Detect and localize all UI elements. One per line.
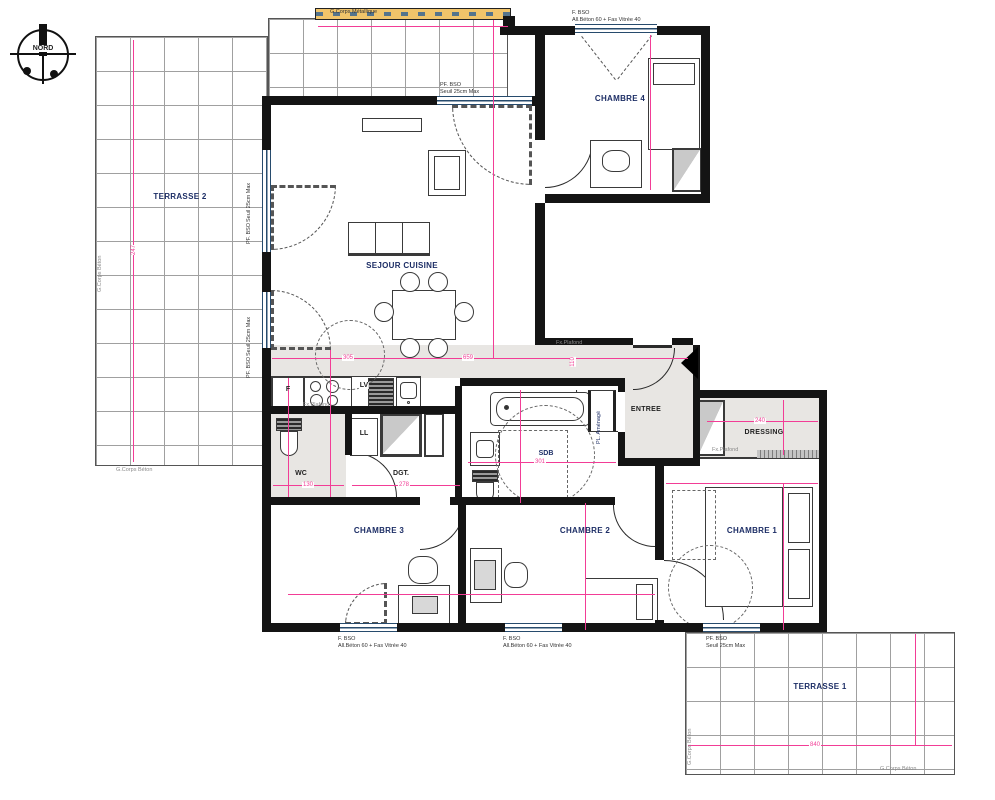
compass-dot-se [50, 70, 58, 78]
wall-right-outer [819, 390, 827, 632]
monitor-chambre2 [474, 560, 496, 590]
chair-4 [428, 338, 448, 358]
sejour-label: SEJOUR CUISINE [366, 261, 438, 270]
wall-corridor-top [535, 338, 633, 345]
note-window-chambre2: F. BSO All.Béton 60 + Fas Vitrée 40 [503, 636, 572, 649]
entree-label: ENTREE [631, 406, 661, 413]
dim-dressing: 240 [754, 418, 766, 424]
burner-1 [310, 381, 321, 392]
wall-ch4-bottom [545, 194, 710, 203]
dim-line-ch1-v [783, 483, 784, 630]
dim-wc: 130 [302, 482, 314, 488]
dim-terrasse1: 840 [809, 742, 821, 748]
dim-line-bedrooms [288, 594, 655, 595]
pillow-chambre4 [653, 63, 695, 85]
entrance-arrow-icon [681, 347, 698, 379]
wall-entree-left [618, 432, 625, 462]
dim-line-sdb-v [520, 390, 521, 503]
sdb-wc-tank [472, 470, 498, 482]
window-sejour-left-upper [262, 150, 271, 252]
note-window-chambre4: F. BSO All.Béton 60 + Fas Vitrée 40 [572, 10, 641, 23]
dim-terrasse2: 247 [131, 245, 137, 255]
dressing-label: DRESSING [745, 429, 784, 436]
compass-label: NORD [32, 45, 55, 52]
dim-line-wc-v [288, 378, 289, 497]
wall-dressing-top [700, 390, 827, 398]
pillow-chambre1-a [788, 493, 810, 543]
note-wll-2: Seuil 25cm Max [246, 317, 253, 356]
closet-dgt-large [380, 413, 422, 457]
window-chambre4 [575, 24, 657, 33]
note-wc2-1: F. BSO [503, 636, 572, 643]
wall-sdb-top [460, 378, 625, 386]
terrasse1-concrete-note-bottom: G.Corps Béton [880, 766, 916, 773]
door-arc-wc [352, 452, 397, 497]
shutter-arc-left-upper [271, 185, 336, 250]
note-window-left-lower: PF. BSO Seuil 25cm Max [246, 292, 253, 378]
tv-panel-inner [434, 156, 460, 190]
chair-3 [400, 338, 420, 358]
wall-sejour-left-c [262, 348, 271, 632]
closet-dgt-small [424, 413, 444, 457]
shutter-arc-chambre3 [345, 583, 387, 625]
wall-ch1-top-link [660, 458, 700, 466]
window-chambre1 [703, 623, 760, 632]
note-false-ceiling-dressing: Fx.Plafond [712, 447, 738, 454]
wall-ch4-right [701, 26, 710, 203]
dim-line-sejour-v [493, 20, 494, 358]
terrasse2-label: TERRASSE 2 [153, 192, 206, 201]
wall-sejour-right [535, 203, 545, 345]
dishwasher-label: LV [359, 382, 369, 389]
terrasse1-label: TERRASSE 1 [793, 682, 846, 691]
wall-bottom-a [262, 623, 340, 632]
window-chambre3 [340, 623, 397, 632]
wall-ch3-ch2-divider [458, 505, 466, 632]
wall-bottom-b [397, 623, 505, 632]
chambre3-label: CHAMBRE 3 [354, 526, 404, 535]
closet-chambre4 [672, 148, 702, 192]
note-wll-1: PF. BSO [246, 357, 253, 378]
pillow-chambre1-b [788, 549, 810, 599]
chambre4-label: CHAMBRE 4 [595, 94, 645, 103]
dim-line-ch4-v [650, 35, 651, 190]
chair-6 [454, 302, 474, 322]
window-sejour-left-lower [262, 292, 271, 348]
dim-corridor-a: 305 [342, 355, 354, 361]
dim-dgt: 278 [398, 482, 410, 488]
note-wst-1: PF. BSO [440, 82, 479, 89]
floor-plan: NORD G.Corps Métallique TERRASSE 2 G.Cor… [0, 0, 995, 800]
dim-line-ch2-v [585, 503, 586, 630]
wall-sdb-right-low [618, 386, 625, 392]
note-wc4-1: F. BSO [572, 10, 641, 17]
chair-5 [374, 302, 394, 322]
compass-needle-tail [42, 56, 44, 84]
wall-sejour-left-b [262, 252, 271, 292]
monitor-chambre3 [412, 596, 438, 614]
note-window-chambre3: F. BSO All.Béton 60 + Fas Vitrée 40 [338, 636, 407, 649]
note-window-left-upper: PF. BSO Seuil 25cm Max [246, 158, 253, 244]
wall-ch2-ch1-divider-a [655, 466, 664, 560]
note-wc2-2: All.Béton 60 + Fas Vitrée 40 [503, 643, 572, 650]
wall-entree-top-stub [672, 338, 693, 345]
dressing-shelf-hatch [757, 450, 819, 458]
dim-line-kitchen-v [330, 350, 331, 497]
window-chambre2 [505, 623, 562, 632]
note-wlu-1: PF. BSO [246, 223, 253, 244]
dim-corridor-h: 110 [570, 357, 576, 367]
awning-note: G.Corps Métallique [330, 9, 377, 16]
wc-bowl [280, 431, 298, 456]
terrasse1-concrete-note-left: G.Corps Béton [687, 705, 694, 765]
note-wlu-2: Seuil 25cm Max [246, 183, 253, 222]
chambre1-label: CHAMBRE 1 [727, 526, 777, 535]
door-leaf-entree [633, 345, 672, 348]
chair-1 [400, 272, 420, 292]
dim-line-corridor [272, 358, 688, 359]
dining-table [392, 290, 456, 340]
dim-sdb: 301 [534, 459, 546, 465]
bathtub-drain [504, 405, 509, 410]
north-compass: NORD [14, 26, 72, 84]
shutter-dash-ch4-a [581, 36, 616, 80]
wall-sejour-top [262, 96, 437, 105]
compass-dot-sw [23, 67, 31, 75]
kitchen-unit [368, 378, 394, 408]
note-wst-2: Seuil 25cm Max [440, 89, 479, 96]
wc-tank [276, 418, 302, 431]
wall-sdb-left [455, 386, 462, 505]
door-arc-chambre4 [545, 140, 593, 188]
note-false-ceiling-corridor: Fx.Plafond [556, 340, 582, 347]
tv-bench [362, 118, 422, 132]
dim-line-terrasse1-v [915, 634, 916, 745]
dgt-label: DGT. [393, 470, 409, 477]
washer-box [350, 418, 378, 456]
sdb-washbasin-bowl [476, 440, 494, 458]
wall-ch3-top-b [450, 497, 458, 505]
pillow-chambre2 [636, 584, 653, 620]
chambre2-label: CHAMBRE 2 [560, 526, 610, 535]
terrasse1-window-note-line2: Seuil 25cm Max [706, 643, 745, 650]
wc-label: WC [295, 470, 307, 477]
desk-chair-chambre2 [504, 562, 528, 588]
wall-wc-right [345, 414, 352, 455]
note-wc4-2: All.Béton 60 + Fas Vitrée 40 [572, 17, 641, 24]
sdb-label: SDB [539, 450, 554, 457]
terrasse2-concrete-note-bottom: G.Corps Béton [116, 467, 152, 474]
terrasse2-tiles-left [95, 36, 268, 466]
sink-tap [407, 401, 410, 404]
note-window-sejour-top: PF. BSO Seuil 25cm Max [440, 82, 479, 95]
dim-line-ch1-h [666, 483, 818, 484]
dim-corridor-b: 659 [462, 355, 474, 361]
note-wc3-2: All.Béton 60 + Fas Vitrée 40 [338, 643, 407, 650]
terrasse1-window-note: PF. BSO Seuil 25cm Max [706, 636, 745, 649]
window-sejour-top-door [437, 96, 532, 105]
terrasse2-concrete-note-left: G.Corps Béton [97, 232, 104, 292]
sink-basin [400, 382, 417, 399]
washer-label: LL [360, 430, 369, 437]
terrasse1-window-note-line1: PF. BSO [706, 636, 745, 643]
wall-ch3-top-a [271, 497, 420, 505]
note-false-ceiling-kitchen: Fx.Plafond [303, 402, 329, 409]
sofa [348, 222, 430, 256]
shutter-dash-ch4-b [617, 35, 652, 79]
turning-circle-chambre1 [668, 545, 753, 630]
wall-kitchen-bottom [271, 406, 461, 414]
wall-bottom-c [562, 623, 703, 632]
chair-2 [428, 272, 448, 292]
dim-line-dressing-v [783, 400, 784, 455]
wall-bottom-d [760, 623, 827, 632]
note-wc3-1: F. BSO [338, 636, 407, 643]
dim-line-awning [318, 26, 508, 27]
wall-ch2-top-a [455, 497, 615, 505]
note-fitted-closet: PL. Aménagé [596, 398, 603, 444]
desk-chair-chambre3 [408, 556, 438, 584]
door-arc-chambre2 [613, 505, 655, 547]
fridge-label: F [286, 386, 290, 393]
desk-chair-chambre4 [602, 150, 630, 172]
wall-ch4-left [535, 26, 545, 140]
